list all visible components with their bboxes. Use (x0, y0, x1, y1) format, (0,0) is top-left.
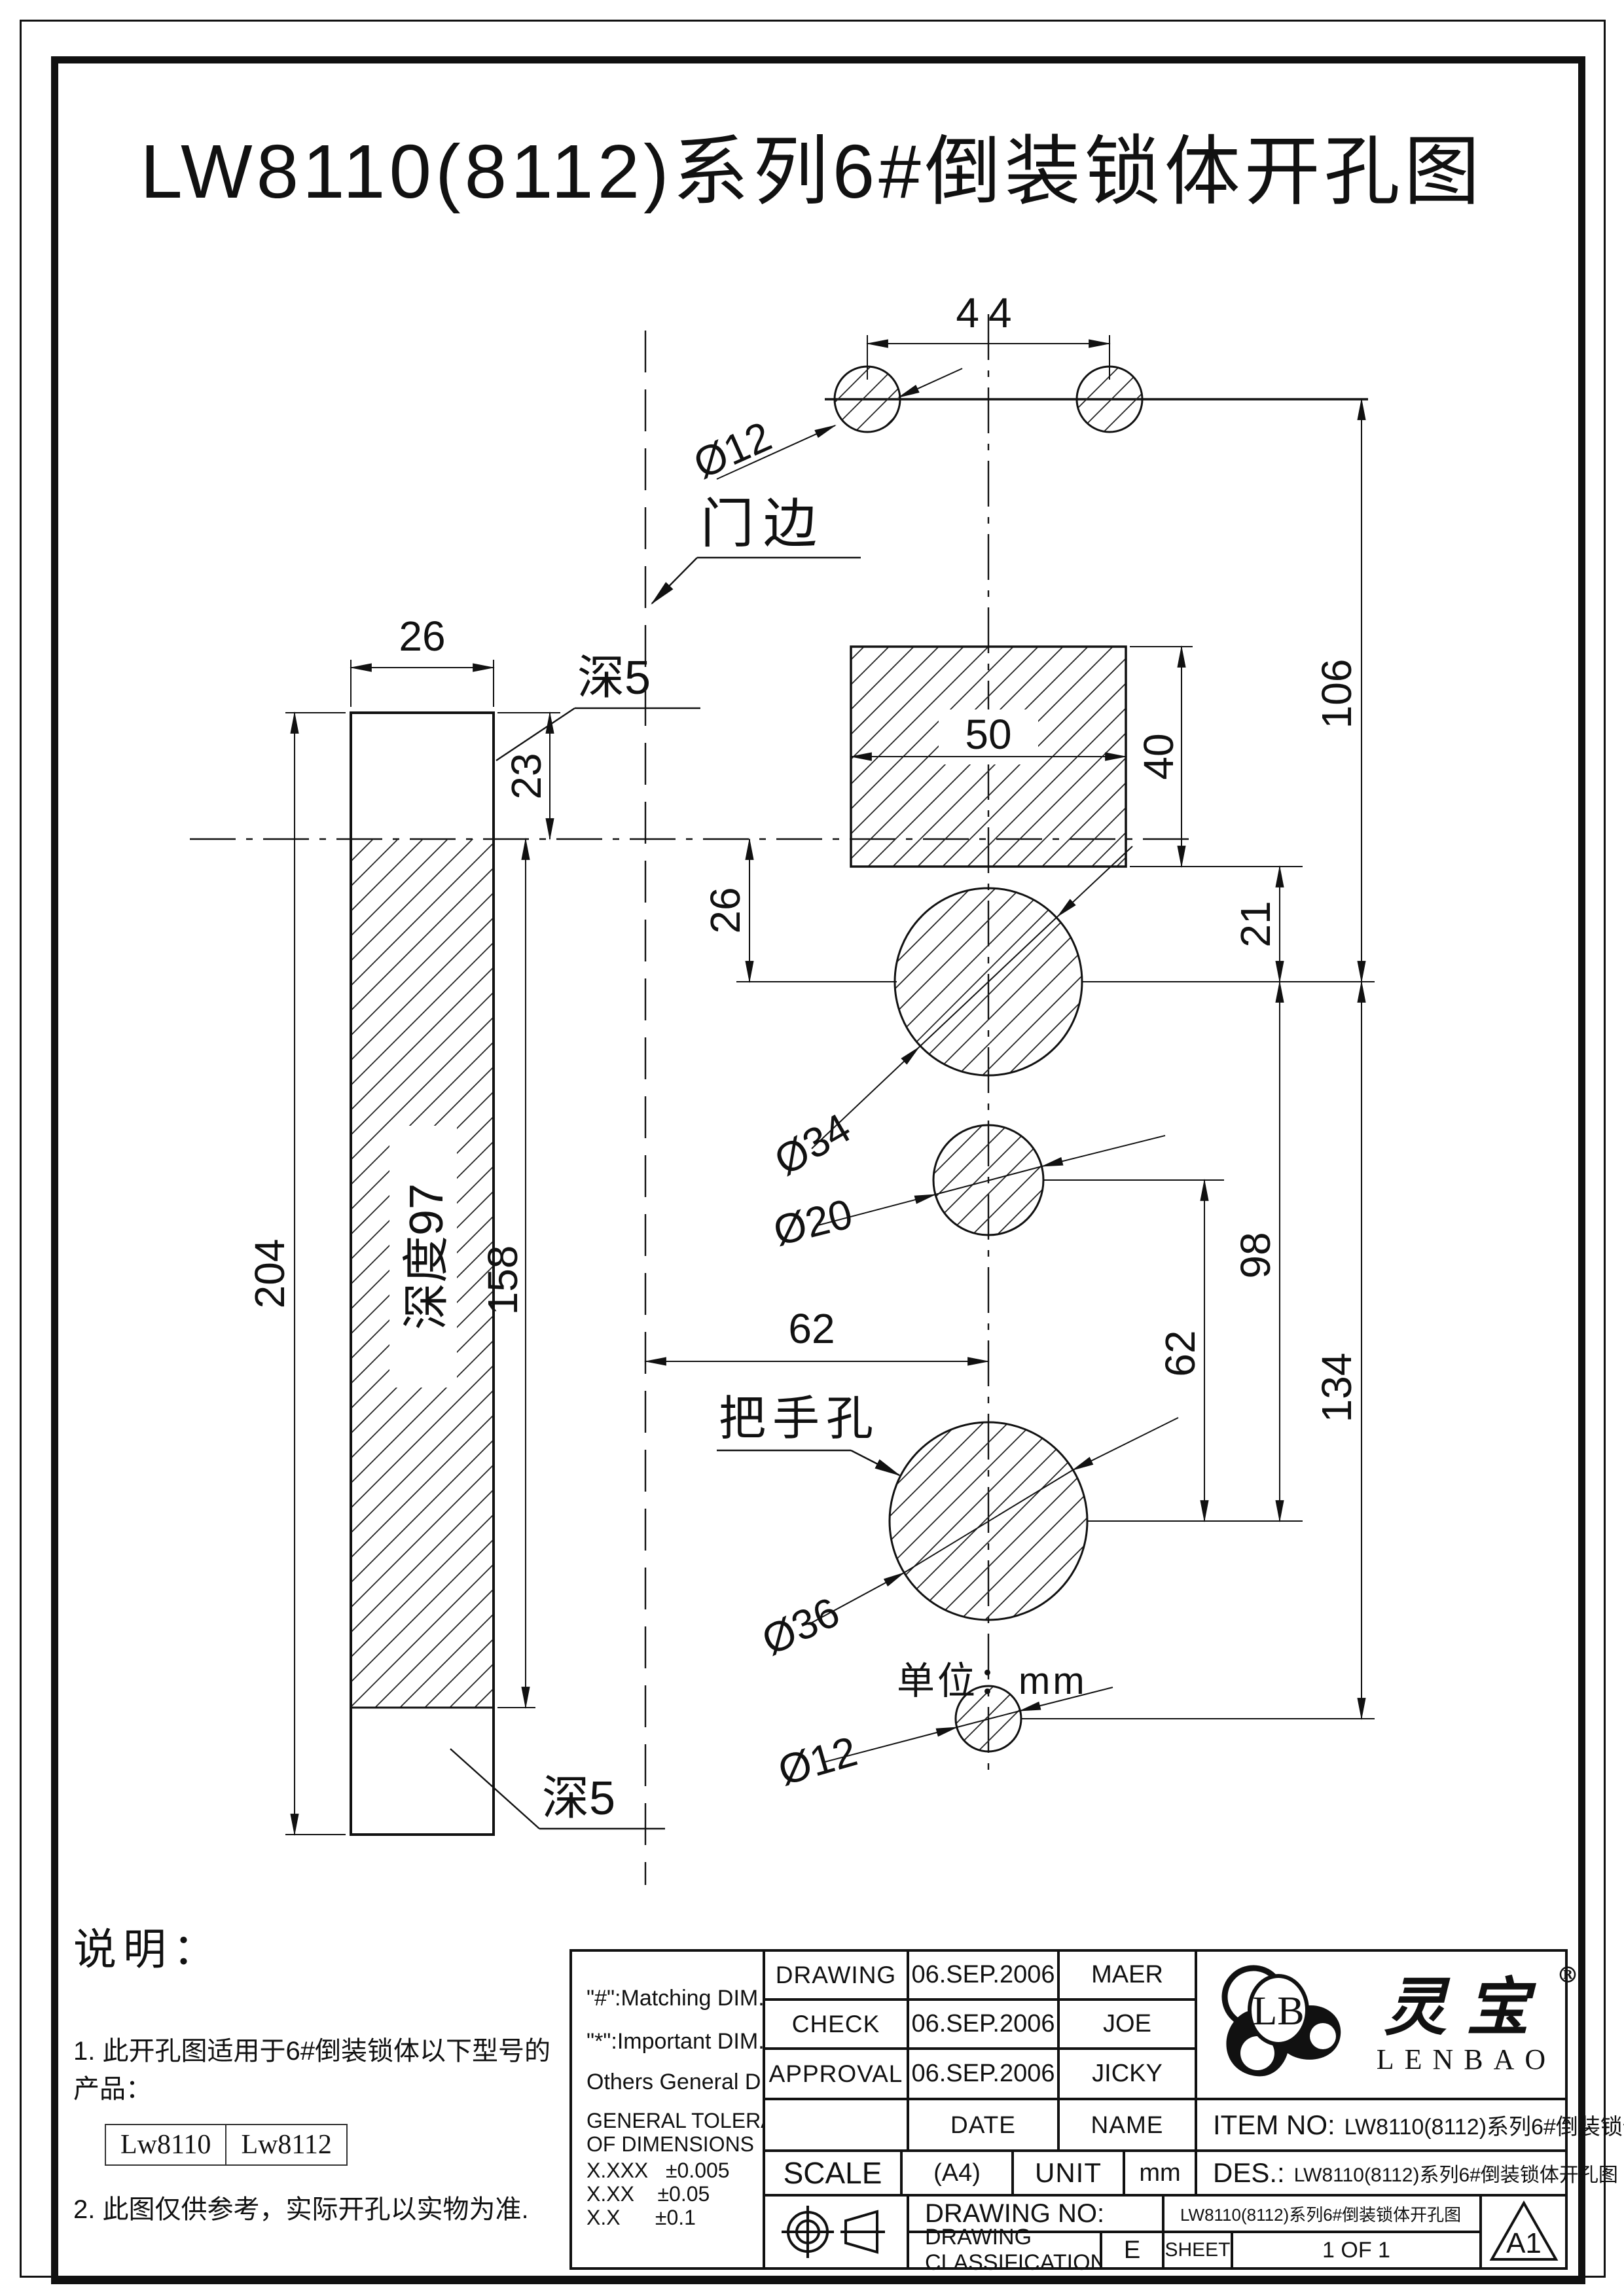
approval-row-name: JICKY (1057, 2047, 1197, 2100)
model-table: Lw8110 Lw8112 (105, 2124, 348, 2166)
notes-heading: 说明： (73, 1914, 571, 1977)
bar-depth-label: 深度97 (401, 1183, 453, 1330)
sheet-value-cell: 1 OF 1 (1231, 2231, 1482, 2270)
check-row-date: 06.SEP.2006 (907, 1998, 1060, 2050)
svg-text:门边: 门边 (700, 494, 826, 554)
handle-hole-label: 把手孔 (717, 1393, 899, 1475)
svg-text:Ø36: Ø36 (755, 1588, 846, 1664)
tolerance-row: X.XX ±0.05 (586, 2182, 710, 2206)
dim-62-horizontal: 62 (645, 1305, 988, 1361)
dimension-notes-column: "#":Matching DIM. "*":Important DIM. Oth… (569, 1949, 765, 2270)
dia12-top-leader: Ø12 (687, 368, 962, 488)
svg-text:深5: 深5 (577, 652, 651, 704)
tol-key: X.X (586, 2206, 621, 2229)
check-row-name: JOE (1057, 1998, 1197, 2050)
classification-label: DRAWING CLASSIFICATION (925, 2225, 1106, 2276)
svg-text:Ø12: Ø12 (687, 412, 778, 488)
svg-text:23: 23 (503, 753, 550, 799)
drawing-row-date: 06.SEP.2006 (907, 1949, 1060, 2001)
notes-section: 说明： 1. 此开孔图适用于6#倒装锁体以下型号的产品： Lw8110 Lw81… (73, 1914, 571, 2226)
dim-23: 23 (497, 713, 560, 839)
dim-106: 106 (1313, 399, 1362, 982)
title-block: "#":Matching DIM. "*":Important DIM. Oth… (569, 1949, 1568, 2270)
brand-wordmark: 灵宝 ® LENBAO (1377, 1976, 1556, 2074)
des-cell: DES.: LW8110(8112)系列6#倒装锁体开孔图 (1195, 2149, 1568, 2197)
check-row-label: CHECK (763, 1998, 909, 2050)
unit-value-cell: mm (1123, 2149, 1197, 2197)
general-dim-note: Others General DIM. (586, 2070, 792, 2095)
svg-text:204: 204 (246, 1239, 293, 1309)
dim-98: 98 (1232, 982, 1280, 1521)
dim-134: 134 (1313, 982, 1362, 1719)
model-cell: Lw8112 (226, 2124, 347, 2166)
brand-cell: LB 灵宝 ® LENBAO (1195, 1949, 1568, 2100)
lock-body-side-view: 深度97 (351, 713, 494, 1835)
tol-key: X.XX (586, 2182, 634, 2206)
depth5-top-label: 深5 (496, 652, 700, 761)
note-2: 2. 此图仅供参考，实际开孔以实物为准. (73, 2188, 571, 2226)
drawing-row-label: DRAWING (763, 1949, 909, 2001)
tol-val: ±0.05 (657, 2182, 710, 2206)
lock-drilling-diagram: 深度97 44 Ø12 门边 (92, 275, 1532, 1911)
projection-symbol-icon (780, 2202, 892, 2261)
svg-text:62: 62 (1157, 1330, 1204, 1376)
tolerance-heading-2: OF DIMENSIONS (586, 2132, 754, 2157)
svg-text:98: 98 (1232, 1232, 1279, 1278)
svg-text:深5: 深5 (542, 1772, 615, 1825)
approval-row-label: APPROVAL (763, 2047, 909, 2100)
svg-text:Ø12: Ø12 (773, 1727, 862, 1795)
unit-label-cell: UNIT (1011, 2149, 1125, 2197)
tol-key: X.XXX (586, 2159, 648, 2182)
drawing-sheet: LW8110(8112)系列6#倒装锁体开孔图 深度97 (0, 0, 1624, 2296)
page-title: LW8110(8112)系列6#倒装锁体开孔图 (0, 110, 1624, 220)
empty-signature-cell (763, 2098, 909, 2152)
brand-english: LENBAO (1377, 2045, 1556, 2074)
svg-text:106: 106 (1313, 659, 1360, 729)
top-edge-and-holes (825, 367, 1368, 432)
registered-mark: ® (1557, 1964, 1579, 1986)
drawing-row-name: MAER (1057, 1949, 1197, 2001)
svg-text:62: 62 (788, 1305, 835, 1352)
tolerance-row: X.XXX ±0.005 (586, 2159, 730, 2183)
date-header-cell: DATE (907, 2098, 1060, 2152)
depth5-bottom-label: 深5 (450, 1749, 665, 1829)
des-value: LW8110(8112)系列6#倒装锁体开孔图 (1294, 2159, 1618, 2187)
paper-size-cell: (A4) (900, 2149, 1014, 2197)
dim-62-vertical: 62 (1157, 1180, 1204, 1521)
drawing-no-value-cell: LW8110(8112)系列6#倒装锁体开孔图 (1162, 2194, 1482, 2233)
item-no-label: ITEM NO: (1213, 2109, 1335, 2141)
model-cell: Lw8110 (105, 2124, 226, 2166)
tol-val: ±0.1 (655, 2206, 696, 2229)
tolerance-row: X.X ±0.1 (586, 2206, 696, 2230)
dim-21: 21 (1232, 867, 1280, 982)
item-no-value: LW8110(8112)系列6#倒装锁体开孔图 (1344, 2109, 1624, 2141)
unit-note: 单位：mm (897, 1660, 1087, 1702)
scale-label-cell: SCALE (763, 2149, 903, 2197)
svg-text:158: 158 (479, 1246, 526, 1316)
important-dim-note: "*":Important DIM. (586, 2029, 765, 2054)
svg-text:Ø20: Ø20 (769, 1190, 857, 1255)
drawing-no-value: LW8110(8112)系列6#倒装锁体开孔图 (1180, 2202, 1461, 2226)
svg-text:21: 21 (1232, 901, 1279, 947)
drawing-no-label: DRAWING NO: (925, 2199, 1104, 2229)
svg-text:134: 134 (1313, 1353, 1360, 1423)
dim-40: 40 (1130, 647, 1303, 867)
dia12-bottom-leader: Ø12 (773, 1687, 1113, 1795)
size-code: A1 (1506, 2227, 1542, 2259)
door-edge-label: 门边 (652, 494, 861, 603)
approval-row-date: 06.SEP.2006 (907, 2047, 1060, 2100)
dim-26-bar: 26 (351, 613, 494, 707)
dim-50: 50 (965, 711, 1011, 758)
sheet-label-cell: SHEET (1162, 2231, 1233, 2270)
classification-value-cell: E (1100, 2231, 1164, 2270)
svg-text:26: 26 (702, 887, 749, 933)
size-code-cell: A1 (1479, 2194, 1568, 2270)
dim-44: 44 (867, 289, 1110, 380)
lb-monogram: LB (1252, 1989, 1304, 2034)
svg-text:44: 44 (956, 289, 1020, 336)
dim-204: 204 (246, 713, 346, 1835)
svg-text:26: 26 (399, 613, 445, 660)
matching-dim-note: "#":Matching DIM. (586, 1986, 765, 2011)
brand-chinese: 灵宝 ® (1384, 1976, 1549, 2039)
centerlines (190, 314, 1191, 1885)
tol-val: ±0.005 (666, 2159, 730, 2182)
strike-plate: 50 (851, 647, 1126, 867)
des-label: DES.: (1213, 2157, 1285, 2189)
svg-text:40: 40 (1135, 733, 1182, 780)
dim-26-vertical: 26 (702, 839, 749, 982)
svg-text:把手孔: 把手孔 (719, 1393, 880, 1445)
svg-text:Ø34: Ø34 (767, 1104, 859, 1185)
projection-symbol-cell (763, 2194, 909, 2270)
note-1: 1. 此开孔图适用于6#倒装锁体以下型号的产品： (73, 2030, 571, 2106)
name-header-cell: NAME (1057, 2098, 1197, 2152)
item-no-cell: ITEM NO: LW8110(8112)系列6#倒装锁体开孔图 (1195, 2098, 1568, 2152)
classification-label-cell: DRAWING CLASSIFICATION (907, 2231, 1102, 2270)
lenbao-logo-mark: LB (1206, 1963, 1357, 2087)
brand-cn-text: 灵宝 (1384, 1970, 1549, 2044)
